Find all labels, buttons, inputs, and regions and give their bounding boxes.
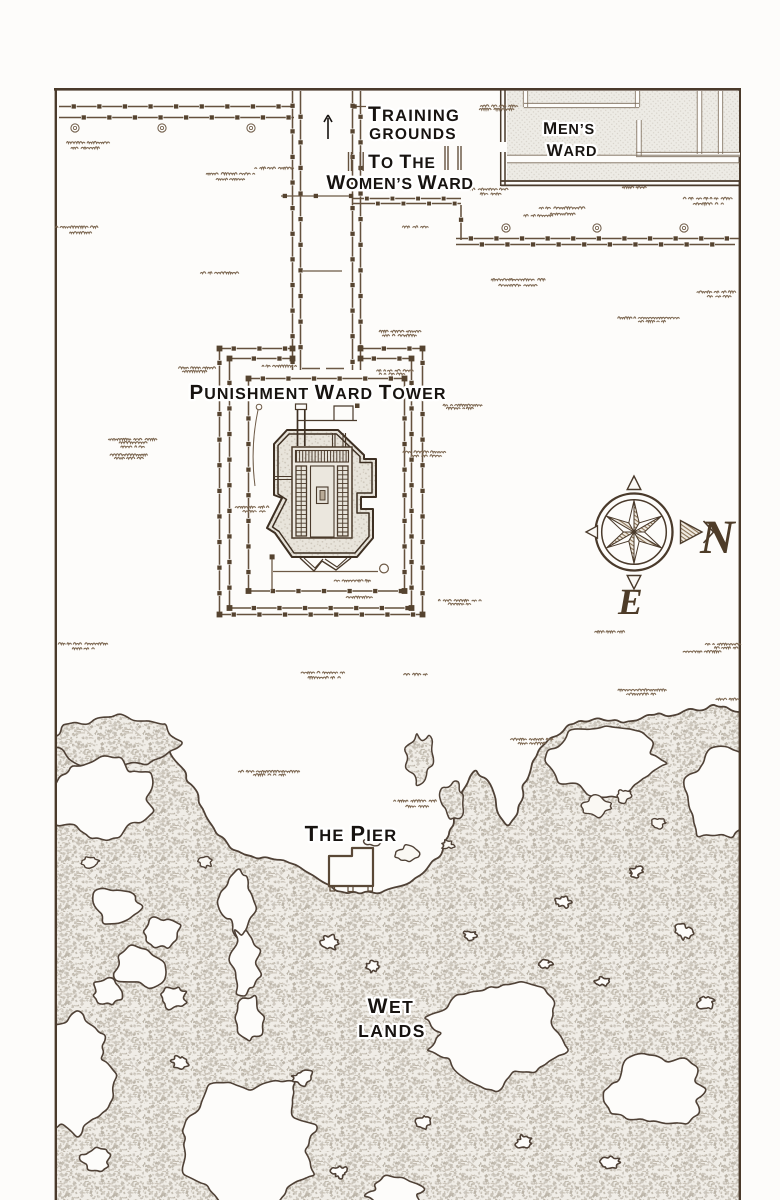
svg-text:WET: WET <box>368 995 415 1018</box>
svg-text:MEN’S: MEN’S <box>543 119 595 138</box>
svg-text:GROUNDS: GROUNDS <box>369 126 457 143</box>
svg-text:WOMEN’S WARD: WOMEN’S WARD <box>326 172 473 194</box>
svg-text:WARD: WARD <box>547 141 598 160</box>
svg-text:N: N <box>699 511 737 564</box>
svg-text:E: E <box>617 582 643 623</box>
svg-text:TRAINING: TRAINING <box>368 103 460 126</box>
svg-text:LANDS: LANDS <box>358 1021 426 1041</box>
svg-text:TO THE: TO THE <box>368 151 436 173</box>
